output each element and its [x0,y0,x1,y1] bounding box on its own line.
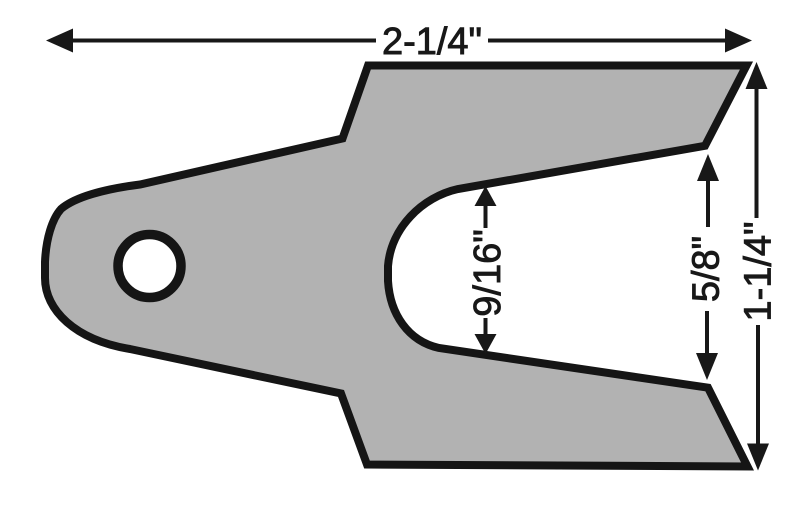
svg-text:1-1/4": 1-1/4" [738,221,780,321]
svg-text:2-1/4": 2-1/4" [382,21,482,63]
svg-text:9/16": 9/16" [467,229,509,316]
svg-text:5/8": 5/8" [686,236,728,302]
